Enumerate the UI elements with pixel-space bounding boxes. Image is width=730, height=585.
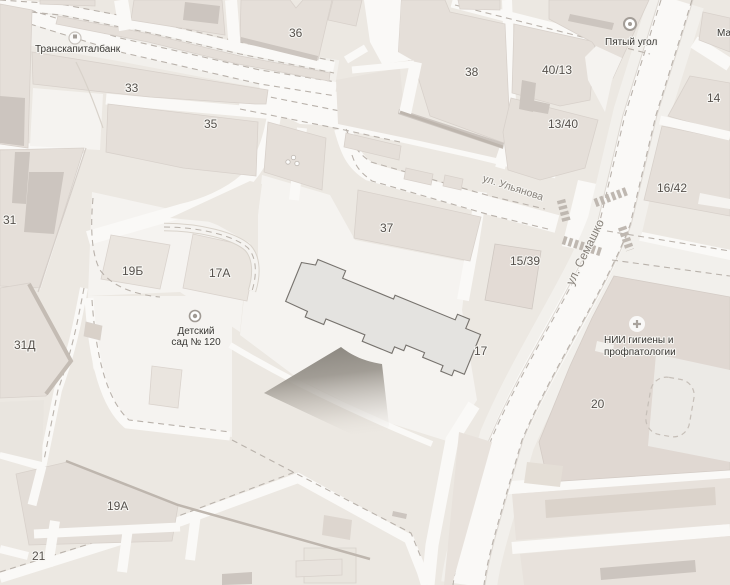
- svg-text:31Д: 31Д: [14, 338, 35, 352]
- svg-text:35: 35: [204, 117, 218, 131]
- svg-text:Пятый угол: Пятый угол: [605, 37, 658, 48]
- svg-text:33: 33: [125, 81, 139, 95]
- svg-text:20: 20: [591, 397, 605, 411]
- svg-text:Транскапиталбанк: Транскапиталбанк: [35, 43, 121, 55]
- svg-text:38: 38: [465, 65, 479, 79]
- svg-text:16/42: 16/42: [657, 181, 687, 195]
- svg-text:13/40: 13/40: [548, 117, 578, 131]
- svg-text:40/13: 40/13: [542, 63, 572, 77]
- svg-text:17: 17: [474, 344, 488, 358]
- svg-text:36: 36: [289, 26, 303, 40]
- svg-text:31: 31: [3, 213, 17, 227]
- svg-text:профпатологии: профпатологии: [604, 346, 676, 358]
- svg-text:17А: 17А: [209, 266, 230, 280]
- svg-text:15/39: 15/39: [510, 254, 540, 268]
- svg-text:Детский: Детский: [177, 326, 214, 337]
- svg-text:19Б: 19Б: [122, 264, 143, 278]
- svg-text:НИИ гигиены и: НИИ гигиены и: [604, 335, 673, 346]
- svg-text:Ма: Ма: [717, 28, 730, 39]
- svg-text:14: 14: [707, 91, 721, 105]
- svg-text:37: 37: [380, 221, 394, 235]
- svg-text:сад № 120: сад № 120: [171, 337, 221, 348]
- svg-text:21: 21: [32, 549, 46, 563]
- svg-text:19А: 19А: [107, 499, 128, 513]
